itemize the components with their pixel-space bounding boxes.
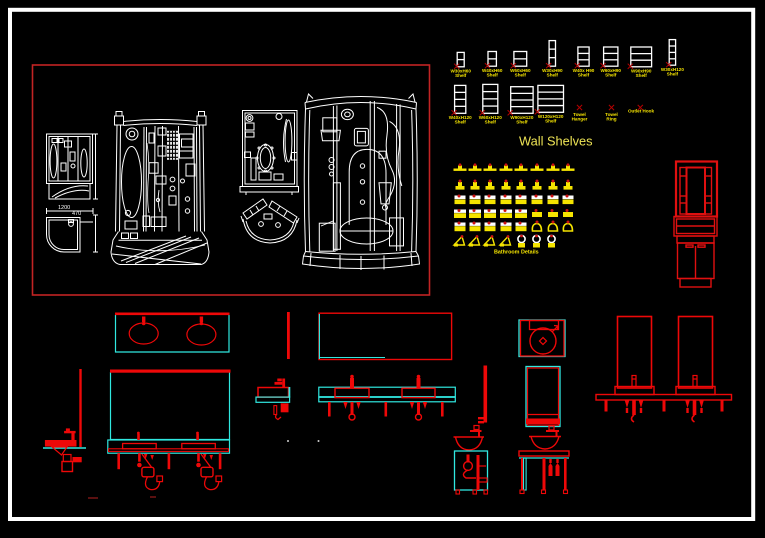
svg-text:TowelHanger: TowelHanger [572,112,588,122]
svg-text:Bathroom Details: Bathroom Details [494,250,539,256]
svg-text:1200: 1200 [58,205,70,211]
svg-text:Outlet Hook: Outlet Hook [628,109,654,114]
svg-text:470: 470 [72,211,81,217]
svg-text:Wall Shelves: Wall Shelves [519,134,593,149]
svg-text:TowelRing: TowelRing [605,112,618,122]
